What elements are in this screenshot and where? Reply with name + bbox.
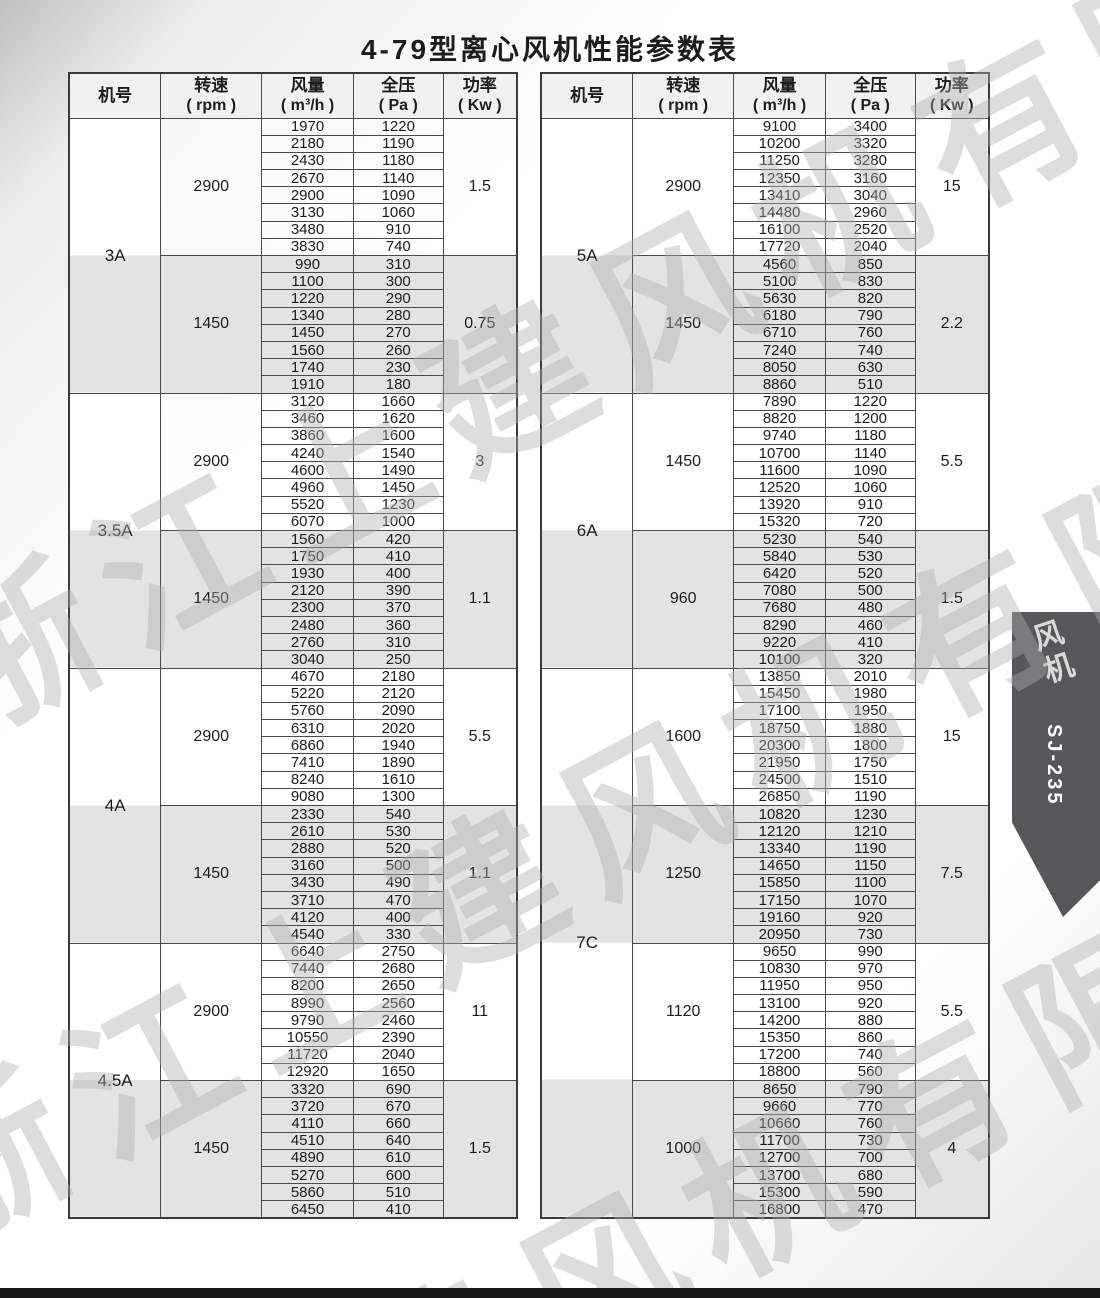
- flow-cell: 2330: [262, 806, 354, 823]
- flow-cell: 4110: [262, 1115, 354, 1132]
- header-cell-3: 全压( Pa ): [825, 73, 915, 118]
- pressure-cell: 1950: [825, 702, 915, 719]
- flow-cell: 15320: [734, 513, 826, 530]
- pressure-cell: 590: [825, 1184, 915, 1201]
- flow-cell: 1560: [262, 341, 354, 358]
- rpm-cell: 2900: [161, 668, 262, 806]
- pressure-cell: 1220: [825, 393, 915, 410]
- flow-cell: 9220: [734, 634, 826, 651]
- pressure-cell: 1230: [353, 496, 443, 513]
- pressure-cell: 910: [353, 221, 443, 238]
- flow-cell: 1220: [262, 290, 354, 307]
- flow-cell: 4890: [262, 1149, 354, 1166]
- pressure-cell: 1090: [825, 462, 915, 479]
- pressure-cell: 1890: [353, 754, 443, 771]
- pressure-cell: 1180: [353, 152, 443, 169]
- flow-cell: 9080: [262, 788, 354, 805]
- flow-cell: 2180: [262, 135, 354, 152]
- pressure-cell: 1620: [353, 410, 443, 427]
- rpm-cell: 1000: [633, 1081, 734, 1219]
- pressure-cell: 2040: [825, 238, 915, 255]
- flow-cell: 16800: [734, 1201, 826, 1218]
- flow-cell: 10700: [734, 445, 826, 462]
- flow-cell: 8650: [734, 1081, 826, 1098]
- flow-cell: 4960: [262, 479, 354, 496]
- pressure-cell: 470: [825, 1201, 915, 1218]
- flow-cell: 2610: [262, 823, 354, 840]
- rpm-cell: 1450: [633, 393, 734, 531]
- pressure-cell: 1140: [825, 445, 915, 462]
- flow-cell: 3860: [262, 427, 354, 444]
- flow-cell: 3160: [262, 857, 354, 874]
- pressure-cell: 230: [353, 359, 443, 376]
- flow-cell: 3320: [262, 1081, 354, 1098]
- pressure-cell: 500: [825, 582, 915, 599]
- pressure-cell: 2020: [353, 720, 443, 737]
- flow-cell: 3130: [262, 204, 354, 221]
- power-cell: 1.1: [443, 806, 517, 944]
- pressure-cell: 400: [353, 909, 443, 926]
- pressure-cell: 720: [825, 513, 915, 530]
- pressure-cell: 2750: [353, 943, 443, 960]
- pressure-cell: 310: [353, 634, 443, 651]
- flow-cell: 4240: [262, 445, 354, 462]
- flow-cell: 10660: [734, 1115, 826, 1132]
- rpm-cell: 2900: [161, 118, 262, 256]
- flow-cell: 5860: [262, 1184, 354, 1201]
- flow-cell: 20950: [734, 926, 826, 943]
- fan-table-right: 机号转速( rpm )风量( m³/h )全压( Pa )功率( Kw )5A2…: [540, 72, 990, 1219]
- table-row: 7C160013850201015: [541, 668, 989, 685]
- power-cell: 11: [443, 943, 517, 1081]
- pressure-cell: 1190: [825, 840, 915, 857]
- pressure-cell: 670: [353, 1098, 443, 1115]
- table-row: 5A29009100340015: [541, 118, 989, 135]
- pressure-cell: 2520: [825, 221, 915, 238]
- pressure-cell: 740: [825, 341, 915, 358]
- flow-cell: 8050: [734, 359, 826, 376]
- pressure-cell: 1800: [825, 737, 915, 754]
- pressure-cell: 3280: [825, 152, 915, 169]
- pressure-cell: 1190: [353, 135, 443, 152]
- flow-cell: 6420: [734, 565, 826, 582]
- flow-cell: 18800: [734, 1063, 826, 1080]
- flow-cell: 7440: [262, 960, 354, 977]
- pressure-cell: 2960: [825, 204, 915, 221]
- pressure-cell: 1610: [353, 771, 443, 788]
- pressure-cell: 540: [353, 806, 443, 823]
- pressure-cell: 420: [353, 531, 443, 548]
- pressure-cell: 330: [353, 926, 443, 943]
- pressure-cell: 2010: [825, 668, 915, 685]
- flow-cell: 15300: [734, 1184, 826, 1201]
- pressure-cell: 560: [825, 1063, 915, 1080]
- flow-cell: 8860: [734, 376, 826, 393]
- pressure-cell: 410: [825, 634, 915, 651]
- flow-cell: 2900: [262, 187, 354, 204]
- pressure-cell: 990: [825, 943, 915, 960]
- pressure-cell: 2390: [353, 1029, 443, 1046]
- flow-cell: 10200: [734, 135, 826, 152]
- flow-cell: 4560: [734, 256, 826, 273]
- pressure-cell: 970: [825, 960, 915, 977]
- flow-cell: 1740: [262, 359, 354, 376]
- pressure-cell: 1200: [825, 410, 915, 427]
- pressure-cell: 3160: [825, 170, 915, 187]
- flow-cell: 7240: [734, 341, 826, 358]
- pressure-cell: 1650: [353, 1063, 443, 1080]
- flow-cell: 9100: [734, 118, 826, 135]
- machine-cell-5A: 5A: [541, 118, 633, 393]
- flow-cell: 1340: [262, 307, 354, 324]
- pressure-cell: 250: [353, 651, 443, 668]
- document-page: 4-79型离心风机性能参数表 机号转速( rpm )风量( m³/h )全压( …: [0, 0, 1100, 1298]
- flow-cell: 8290: [734, 616, 826, 633]
- flow-cell: 2670: [262, 170, 354, 187]
- flow-cell: 1100: [262, 273, 354, 290]
- flow-cell: 6070: [262, 513, 354, 530]
- pressure-cell: 520: [825, 565, 915, 582]
- flow-cell: 3480: [262, 221, 354, 238]
- flow-cell: 15350: [734, 1029, 826, 1046]
- fan-performance-table-left: 机号转速( rpm )风量( m³/h )全压( Pa )功率( Kw )3A2…: [68, 72, 518, 1219]
- power-cell: 4: [915, 1081, 989, 1219]
- header-cell-2: 风量( m³/h ): [262, 73, 354, 118]
- flow-cell: 2760: [262, 634, 354, 651]
- flow-cell: 2430: [262, 152, 354, 169]
- flow-cell: 19160: [734, 909, 826, 926]
- power-cell: 1.5: [443, 1081, 517, 1219]
- pressure-cell: 950: [825, 977, 915, 994]
- flow-cell: 1450: [262, 324, 354, 341]
- machine-cell-4.5A: 4.5A: [69, 943, 161, 1218]
- table-row: 4.5A29006640275011: [69, 943, 517, 960]
- pressure-cell: 1230: [825, 806, 915, 823]
- pressure-cell: 1000: [353, 513, 443, 530]
- flow-cell: 13850: [734, 668, 826, 685]
- flow-cell: 13700: [734, 1166, 826, 1183]
- pressure-cell: 410: [353, 548, 443, 565]
- pressure-cell: 660: [353, 1115, 443, 1132]
- pressure-cell: 1150: [825, 857, 915, 874]
- page-title: 4-79型离心风机性能参数表: [0, 28, 1100, 68]
- pressure-cell: 360: [353, 616, 443, 633]
- flow-cell: 4120: [262, 909, 354, 926]
- pressure-cell: 2560: [353, 995, 443, 1012]
- flow-cell: 2120: [262, 582, 354, 599]
- pressure-cell: 2120: [353, 685, 443, 702]
- pressure-cell: 3320: [825, 135, 915, 152]
- flow-cell: 5760: [262, 702, 354, 719]
- flow-cell: 2880: [262, 840, 354, 857]
- flow-cell: 5220: [262, 685, 354, 702]
- flow-cell: 14480: [734, 204, 826, 221]
- flow-cell: 20300: [734, 737, 826, 754]
- flow-cell: 17150: [734, 891, 826, 908]
- flow-cell: 6860: [262, 737, 354, 754]
- flow-cell: 4510: [262, 1132, 354, 1149]
- flow-cell: 1560: [262, 531, 354, 548]
- pressure-cell: 410: [353, 1201, 443, 1218]
- pressure-cell: 2680: [353, 960, 443, 977]
- pressure-cell: 920: [825, 909, 915, 926]
- flow-cell: 10550: [262, 1029, 354, 1046]
- flow-cell: 5630: [734, 290, 826, 307]
- side-tab-label: SJ-235: [1042, 724, 1065, 807]
- pressure-cell: 510: [825, 376, 915, 393]
- pressure-cell: 640: [353, 1132, 443, 1149]
- flow-cell: 5840: [734, 548, 826, 565]
- pressure-cell: 880: [825, 1012, 915, 1029]
- pressure-cell: 1060: [825, 479, 915, 496]
- flow-cell: 18750: [734, 720, 826, 737]
- flow-cell: 14650: [734, 857, 826, 874]
- table-row: 6A1450789012205.5: [541, 393, 989, 410]
- pressure-cell: 520: [353, 840, 443, 857]
- power-cell: 7.5: [915, 806, 989, 944]
- machine-cell-4A: 4A: [69, 668, 161, 943]
- pressure-cell: 530: [825, 548, 915, 565]
- pressure-cell: 850: [825, 256, 915, 273]
- pressure-cell: 3040: [825, 187, 915, 204]
- power-cell: 1.5: [915, 531, 989, 669]
- machine-cell-6A: 6A: [541, 393, 633, 668]
- rpm-cell: 2900: [633, 118, 734, 256]
- pressure-cell: 1220: [353, 118, 443, 135]
- pressure-cell: 1090: [353, 187, 443, 204]
- pressure-cell: 480: [825, 599, 915, 616]
- rpm-cell: 1450: [161, 1081, 262, 1219]
- flow-cell: 7890: [734, 393, 826, 410]
- pressure-cell: 320: [825, 651, 915, 668]
- pressure-cell: 820: [825, 290, 915, 307]
- pressure-cell: 740: [353, 238, 443, 255]
- flow-cell: 3430: [262, 874, 354, 891]
- pressure-cell: 2180: [353, 668, 443, 685]
- power-cell: 2.2: [915, 256, 989, 394]
- table-row: 3A2900197012201.5: [69, 118, 517, 135]
- header-cell-3: 全压( Pa ): [353, 73, 443, 118]
- pressure-cell: 600: [353, 1166, 443, 1183]
- flow-cell: 21950: [734, 754, 826, 771]
- pressure-cell: 2650: [353, 977, 443, 994]
- flow-cell: 6310: [262, 720, 354, 737]
- pressure-cell: 270: [353, 324, 443, 341]
- power-cell: 1.1: [443, 531, 517, 669]
- header-cell-0: 机号: [69, 73, 161, 118]
- rpm-cell: 1120: [633, 943, 734, 1081]
- flow-cell: 7080: [734, 582, 826, 599]
- pressure-cell: 1300: [353, 788, 443, 805]
- pressure-cell: 180: [353, 376, 443, 393]
- pressure-cell: 460: [825, 616, 915, 633]
- flow-cell: 10830: [734, 960, 826, 977]
- pressure-cell: 280: [353, 307, 443, 324]
- flow-cell: 5230: [734, 531, 826, 548]
- pressure-cell: 790: [825, 307, 915, 324]
- pressure-cell: 630: [825, 359, 915, 376]
- pressure-cell: 3400: [825, 118, 915, 135]
- flow-cell: 10820: [734, 806, 826, 823]
- flow-cell: 3460: [262, 410, 354, 427]
- pressure-cell: 1980: [825, 685, 915, 702]
- flow-cell: 12920: [262, 1063, 354, 1080]
- flow-cell: 13340: [734, 840, 826, 857]
- fan-table-left: 机号转速( rpm )风量( m³/h )全压( Pa )功率( Kw )3A2…: [68, 72, 518, 1219]
- pressure-cell: 2040: [353, 1046, 443, 1063]
- rpm-cell: 1250: [633, 806, 734, 944]
- flow-cell: 15850: [734, 874, 826, 891]
- pressure-cell: 680: [825, 1166, 915, 1183]
- flow-cell: 3120: [262, 393, 354, 410]
- flow-cell: 8990: [262, 995, 354, 1012]
- flow-cell: 4670: [262, 668, 354, 685]
- pressure-cell: 760: [825, 324, 915, 341]
- flow-cell: 9740: [734, 427, 826, 444]
- rpm-cell: 1450: [161, 256, 262, 394]
- power-cell: 5.5: [915, 393, 989, 531]
- rpm-cell: 1450: [161, 806, 262, 944]
- flow-cell: 26850: [734, 788, 826, 805]
- flow-cell: 6640: [262, 943, 354, 960]
- flow-cell: 8240: [262, 771, 354, 788]
- flow-cell: 7680: [734, 599, 826, 616]
- flow-cell: 9650: [734, 943, 826, 960]
- pressure-cell: 1180: [825, 427, 915, 444]
- machine-cell-3.5A: 3.5A: [69, 393, 161, 668]
- rpm-cell: 1450: [161, 531, 262, 669]
- pressure-cell: 500: [353, 857, 443, 874]
- header-cell-4: 功率( Kw ): [915, 73, 989, 118]
- pressure-cell: 1190: [825, 788, 915, 805]
- flow-cell: 16100: [734, 221, 826, 238]
- pressure-cell: 490: [353, 874, 443, 891]
- power-cell: 3: [443, 393, 517, 531]
- pressure-cell: 730: [825, 926, 915, 943]
- flow-cell: 14200: [734, 1012, 826, 1029]
- header-cell-1: 转速( rpm ): [161, 73, 262, 118]
- pressure-cell: 1490: [353, 462, 443, 479]
- machine-cell-3A: 3A: [69, 118, 161, 393]
- fan-performance-table-right: 机号转速( rpm )风量( m³/h )全压( Pa )功率( Kw )5A2…: [540, 72, 990, 1219]
- flow-cell: 2480: [262, 616, 354, 633]
- flow-cell: 13100: [734, 995, 826, 1012]
- flow-cell: 6450: [262, 1201, 354, 1218]
- flow-cell: 2300: [262, 599, 354, 616]
- power-cell: 15: [915, 118, 989, 256]
- power-cell: 1.5: [443, 118, 517, 256]
- flow-cell: 3710: [262, 891, 354, 908]
- pressure-cell: 730: [825, 1132, 915, 1149]
- side-tab-watermark: 风机: [1019, 615, 1082, 693]
- power-cell: 0.75: [443, 256, 517, 394]
- flow-cell: 17720: [734, 238, 826, 255]
- pressure-cell: 370: [353, 599, 443, 616]
- flow-cell: 9790: [262, 1012, 354, 1029]
- pressure-cell: 1210: [825, 823, 915, 840]
- flow-cell: 24500: [734, 771, 826, 788]
- flow-cell: 11600: [734, 462, 826, 479]
- pressure-cell: 300: [353, 273, 443, 290]
- flow-cell: 17100: [734, 702, 826, 719]
- pressure-cell: 1060: [353, 204, 443, 221]
- pressure-cell: 690: [353, 1081, 443, 1098]
- pressure-cell: 860: [825, 1029, 915, 1046]
- flow-cell: 1750: [262, 548, 354, 565]
- pressure-cell: 400: [353, 565, 443, 582]
- pressure-cell: 740: [825, 1046, 915, 1063]
- flow-cell: 3830: [262, 238, 354, 255]
- bottom-edge-bar: [0, 1288, 1100, 1298]
- power-cell: 5.5: [915, 943, 989, 1081]
- rpm-cell: 1450: [633, 256, 734, 394]
- header-cell-0: 机号: [541, 73, 633, 118]
- side-tab: 风机 SJ-235: [1012, 612, 1100, 917]
- flow-cell: 3720: [262, 1098, 354, 1115]
- header-cell-4: 功率( Kw ): [443, 73, 517, 118]
- flow-cell: 1970: [262, 118, 354, 135]
- pressure-cell: 910: [825, 496, 915, 513]
- pressure-cell: 610: [353, 1149, 443, 1166]
- rpm-cell: 2900: [161, 943, 262, 1081]
- pressure-cell: 1100: [825, 874, 915, 891]
- flow-cell: 10100: [734, 651, 826, 668]
- flow-cell: 7410: [262, 754, 354, 771]
- flow-cell: 6180: [734, 307, 826, 324]
- pressure-cell: 1880: [825, 720, 915, 737]
- flow-cell: 1930: [262, 565, 354, 582]
- pressure-cell: 390: [353, 582, 443, 599]
- pressure-cell: 830: [825, 273, 915, 290]
- pressure-cell: 310: [353, 256, 443, 273]
- flow-cell: 5100: [734, 273, 826, 290]
- power-cell: 5.5: [443, 668, 517, 806]
- flow-cell: 5520: [262, 496, 354, 513]
- pressure-cell: 1450: [353, 479, 443, 496]
- flow-cell: 1910: [262, 376, 354, 393]
- flow-cell: 12120: [734, 823, 826, 840]
- pressure-cell: 790: [825, 1081, 915, 1098]
- pressure-cell: 1940: [353, 737, 443, 754]
- pressure-cell: 540: [825, 531, 915, 548]
- pressure-cell: 1140: [353, 170, 443, 187]
- machine-cell-7C: 7C: [541, 668, 633, 1218]
- pressure-cell: 770: [825, 1098, 915, 1115]
- flow-cell: 3040: [262, 651, 354, 668]
- pressure-cell: 1070: [825, 891, 915, 908]
- pressure-cell: 470: [353, 891, 443, 908]
- flow-cell: 5270: [262, 1166, 354, 1183]
- flow-cell: 12520: [734, 479, 826, 496]
- rpm-cell: 960: [633, 531, 734, 669]
- pressure-cell: 290: [353, 290, 443, 307]
- pressure-cell: 1600: [353, 427, 443, 444]
- pressure-cell: 920: [825, 995, 915, 1012]
- pressure-cell: 260: [353, 341, 443, 358]
- pressure-cell: 2090: [353, 702, 443, 719]
- flow-cell: 15450: [734, 685, 826, 702]
- header-cell-1: 转速( rpm ): [633, 73, 734, 118]
- pressure-cell: 1660: [353, 393, 443, 410]
- pressure-cell: 700: [825, 1149, 915, 1166]
- header-cell-2: 风量( m³/h ): [734, 73, 826, 118]
- pressure-cell: 530: [353, 823, 443, 840]
- pressure-cell: 760: [825, 1115, 915, 1132]
- pressure-cell: 1750: [825, 754, 915, 771]
- pressure-cell: 1540: [353, 445, 443, 462]
- flow-cell: 11700: [734, 1132, 826, 1149]
- flow-cell: 6710: [734, 324, 826, 341]
